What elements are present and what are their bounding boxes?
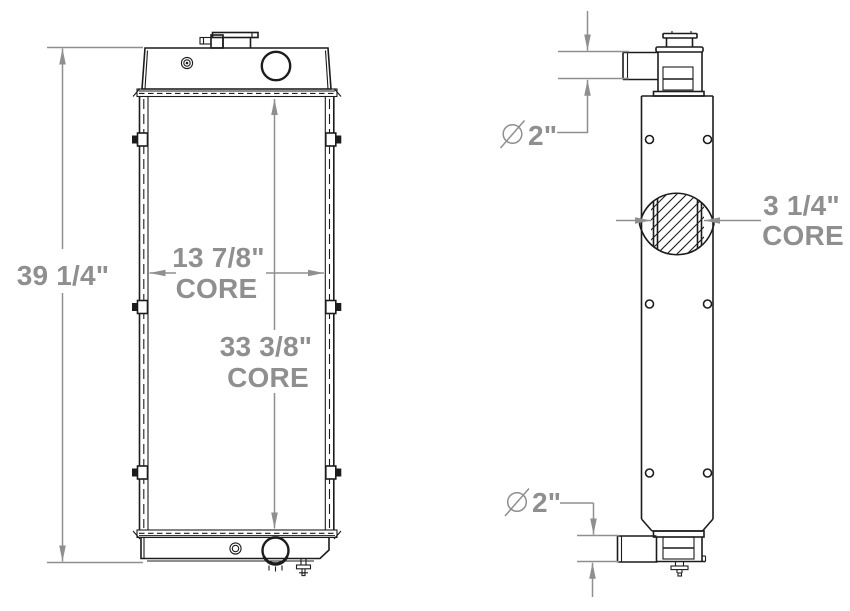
bottom-pipe-diameter-value: 2" [532,487,561,518]
core-section-cutout [575,184,777,266]
mounting-tab [326,133,342,146]
core-depth-label: CORE [762,220,844,251]
bolt-hole [646,136,654,144]
mounting-tab [326,466,342,479]
dimension-bottom-pipe-diameter: 2" [505,487,619,597]
top-pipe-diameter-value: 2" [528,120,557,151]
core-side-channels [140,97,334,531]
top-plug-fitting [181,57,192,68]
bottom-tank-side [618,531,706,576]
radiator-cap-front [200,33,258,49]
bolt-hole [704,136,712,144]
core-width-value: 13 7/8" [172,242,265,273]
section-hatching [575,184,777,266]
mounting-tabs [132,133,341,479]
mounting-tab [132,301,148,314]
core-height-label: CORE [227,362,309,393]
radiator-cap-side [663,31,697,47]
mounting-tab [132,466,148,479]
diameter-symbol [501,121,525,149]
overall-height-value: 39 1/4" [17,260,110,291]
top-inlet-pipe [623,53,658,80]
bottom-tank-front [141,538,329,576]
bottom-plug-fitting [230,543,241,554]
bottom-header-band [133,530,341,539]
bolt-hole [704,469,712,477]
dimension-core-height: 33 3/8" CORE [220,99,313,529]
inlet-opening-circle [262,52,290,80]
drain-petcock-side [671,562,688,576]
dimension-top-pipe-diameter: 2" [501,11,630,151]
core-height-value: 33 3/8" [220,331,313,362]
bolt-hole [646,300,654,308]
side-body [642,96,714,531]
top-tank-side [623,47,704,96]
side-view [575,31,777,576]
radiator-drawing: 39 1/4" 13 7/8" CORE 33 3/8" CORE [0,0,850,611]
bolt-hole [704,300,712,308]
front-view [132,33,341,576]
core-depth-value: 3 1/4" [763,190,840,221]
dimension-overall-height: 39 1/4" [17,48,143,563]
dimension-core-depth: 3 1/4" CORE [616,190,844,251]
diameter-symbol [505,489,529,517]
bolt-holes [646,136,712,478]
bottom-outlet-pipe [618,536,658,562]
mounting-tab [326,301,342,314]
outlet-opening-circle [263,538,289,572]
top-tank-front [142,48,331,89]
bolt-hole [646,469,654,477]
core-width-label: CORE [176,273,258,304]
radiator-drawing-page: 39 1/4" 13 7/8" CORE 33 3/8" CORE [0,0,850,611]
mounting-tab [132,133,148,146]
dimension-core-width: 13 7/8" CORE [150,242,325,304]
